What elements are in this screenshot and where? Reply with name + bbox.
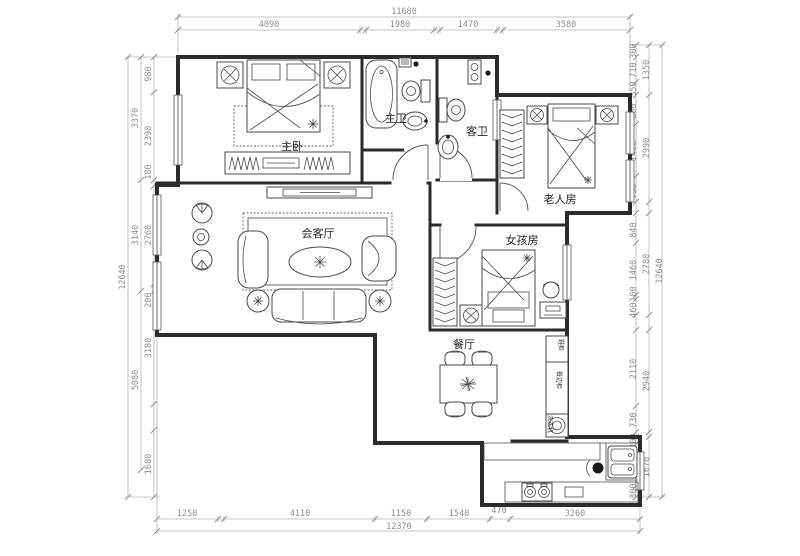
dim-right-seg-12: 730	[629, 412, 639, 427]
dim-right-seg-8: 1460	[629, 260, 639, 280]
wardrobe-elderly	[500, 110, 524, 178]
shoe-cabinet: 鞋柜	[546, 336, 568, 362]
dining-chair-1	[445, 351, 465, 366]
dining-chair-4	[472, 402, 492, 417]
floor-plan-drawing: 11680 4090 1980 1470 3580 1250 4110 1150…	[0, 0, 800, 556]
dim-top-seg-4: 3580	[556, 20, 576, 30]
desk-girls	[540, 302, 566, 318]
tv-cabinet	[267, 187, 372, 198]
dim-bottom-seg-1: 1250	[177, 509, 197, 519]
toilet-master-icon	[402, 80, 430, 102]
room-label-living-room: 会客厅	[302, 226, 335, 240]
hood-panel	[565, 487, 583, 497]
sofa	[272, 289, 366, 324]
room-label-master-bedroom: 主卧	[281, 140, 303, 153]
dim-right-seg-11: 2110	[629, 359, 639, 379]
dim-left-seg-6: 3180	[144, 338, 154, 358]
dim-right-group-2: 2990	[642, 138, 652, 158]
plant-star	[523, 254, 531, 262]
armchair-right	[362, 236, 396, 281]
nightstand-elderly-right	[596, 106, 618, 124]
dimensions-top: 11680 4090 1980 1470 3580	[175, 7, 633, 91]
faucet-dot	[593, 463, 604, 474]
window-balcony-2	[153, 262, 161, 330]
window-elderly-right-2	[626, 160, 634, 202]
living-room: 会客厅	[192, 187, 396, 324]
dim-left-group-2: 3140	[131, 225, 141, 245]
dim-left-group-1: 3370	[131, 108, 141, 128]
side-table-right	[369, 290, 391, 312]
master-bath: 主卫	[366, 58, 430, 130]
side-table-left	[247, 290, 269, 312]
elderly-bed	[548, 104, 595, 188]
dim-bottom-seg-4: 1540	[449, 509, 469, 519]
window-elderly-right-1	[626, 112, 634, 154]
dim-right-group-1: 1350	[642, 60, 652, 80]
dimensions-right: 300 710 350 800 1460 730 840 1460 100 46…	[629, 42, 665, 500]
floor-plan-canvas: 11680 4090 1980 1470 3580 1250 4110 1150…	[0, 0, 800, 556]
dim-left-seg-1: 980	[144, 66, 154, 81]
washer-label: 洗衣机	[546, 415, 554, 433]
dining-chair-2	[472, 351, 492, 366]
nightstand-left	[217, 62, 243, 88]
dim-top-seg-2: 1980	[390, 20, 410, 30]
nightstand-elderly-left	[527, 106, 547, 124]
elderly-room: 老人房	[500, 104, 618, 206]
dim-right-total: 12640	[655, 258, 665, 284]
armchair-left	[238, 231, 268, 288]
window-master-left	[174, 95, 182, 165]
desk-chair	[543, 282, 559, 298]
dim-left-seg-4: 2760	[144, 225, 154, 245]
dim-left-group-3: 5080	[131, 370, 141, 390]
dim-right-group-3: 2780	[642, 254, 652, 274]
plant-star	[308, 119, 318, 129]
dim-right-seg-1: 300	[629, 43, 639, 58]
balcony-table	[193, 229, 209, 245]
balcony-chair-bottom	[192, 250, 212, 270]
dim-bottom-seg-5: 470	[491, 506, 506, 516]
dim-right-seg-2: 710	[629, 62, 639, 77]
dim-top-seg-1: 4090	[259, 20, 279, 30]
sink-guest-icon	[438, 135, 458, 159]
dim-left-seg-3: 180	[144, 164, 154, 179]
dim-right-group-4: 2940	[642, 371, 652, 391]
shoe-cabinet-label: 鞋柜	[557, 339, 565, 351]
dim-left-total: 12640	[118, 264, 128, 290]
door-elderly-room	[500, 183, 528, 211]
room-label-master-bath: 主卫	[385, 112, 407, 125]
master-bed	[247, 60, 320, 132]
kitchen-sink-icon	[587, 446, 637, 478]
dim-left-seg-2: 2390	[144, 126, 154, 146]
nightstand-right	[324, 62, 350, 88]
nightstand-girls	[460, 305, 482, 326]
guest-bath: 客卫	[438, 60, 491, 159]
dim-right-seg-7: 840	[629, 222, 639, 237]
dim-bottom-seg-6: 3260	[565, 509, 585, 519]
dining-room: 餐厅 鞋柜 餐边柜 洗衣机	[440, 336, 568, 437]
wardrobe-girls	[433, 258, 457, 326]
faucet-dot	[485, 70, 490, 75]
wardrobe-master	[225, 152, 350, 174]
room-label-dining-room: 餐厅	[453, 337, 475, 351]
dim-bottom-seg-2: 4110	[290, 509, 310, 519]
stove-icon	[522, 483, 552, 501]
room-label-elderly-room: 老人房	[544, 193, 577, 206]
girls-room: 女孩房	[433, 233, 566, 326]
sideboard-cabinet: 餐边柜	[546, 362, 568, 414]
kitchen	[484, 443, 638, 502]
sideboard-label: 餐边柜	[555, 371, 563, 389]
room-label-girls-room: 女孩房	[506, 233, 539, 247]
faucet-dot	[413, 61, 418, 66]
dim-left-seg-7: 1680	[144, 454, 154, 474]
master-bedroom: 主卧	[217, 60, 350, 174]
window-girls-right	[563, 245, 571, 300]
plant-star	[584, 176, 592, 184]
window-balcony-1	[153, 195, 161, 255]
dim-left-seg-5: 200	[144, 292, 154, 307]
dim-bottom-total: 12370	[386, 522, 412, 532]
room-label-guest-bath: 客卫	[466, 124, 488, 138]
dining-table	[440, 365, 497, 403]
washbasin-counter-icon	[468, 60, 491, 84]
dining-chair-3	[445, 402, 465, 417]
dim-right-seg-10: 460	[629, 302, 639, 317]
dim-bottom-seg-3: 1150	[391, 509, 411, 519]
shower-icon	[399, 58, 419, 67]
washing-machine-icon: 洗衣机	[546, 414, 568, 437]
dim-top-total: 11680	[391, 7, 417, 17]
balcony-chair-top	[192, 203, 212, 223]
coffee-table	[289, 247, 351, 277]
toilet-guest-icon	[439, 98, 465, 122]
dim-top-seg-3: 1470	[458, 20, 478, 30]
dimensions-left: 980 2390 180 2760 200 3180 1680 3370 314…	[118, 54, 178, 500]
dim-right-seg-9: 100	[629, 286, 639, 301]
